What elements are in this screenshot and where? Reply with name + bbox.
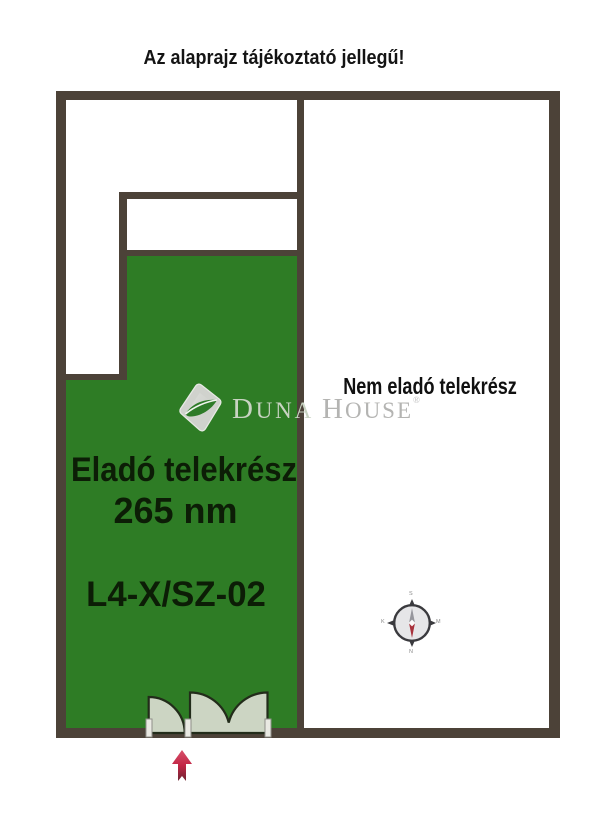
svg-text:®: ® [413, 395, 420, 405]
svg-text:DUNA: DUNA [232, 393, 314, 425]
svg-text:HOUSE: HOUSE [322, 393, 413, 425]
